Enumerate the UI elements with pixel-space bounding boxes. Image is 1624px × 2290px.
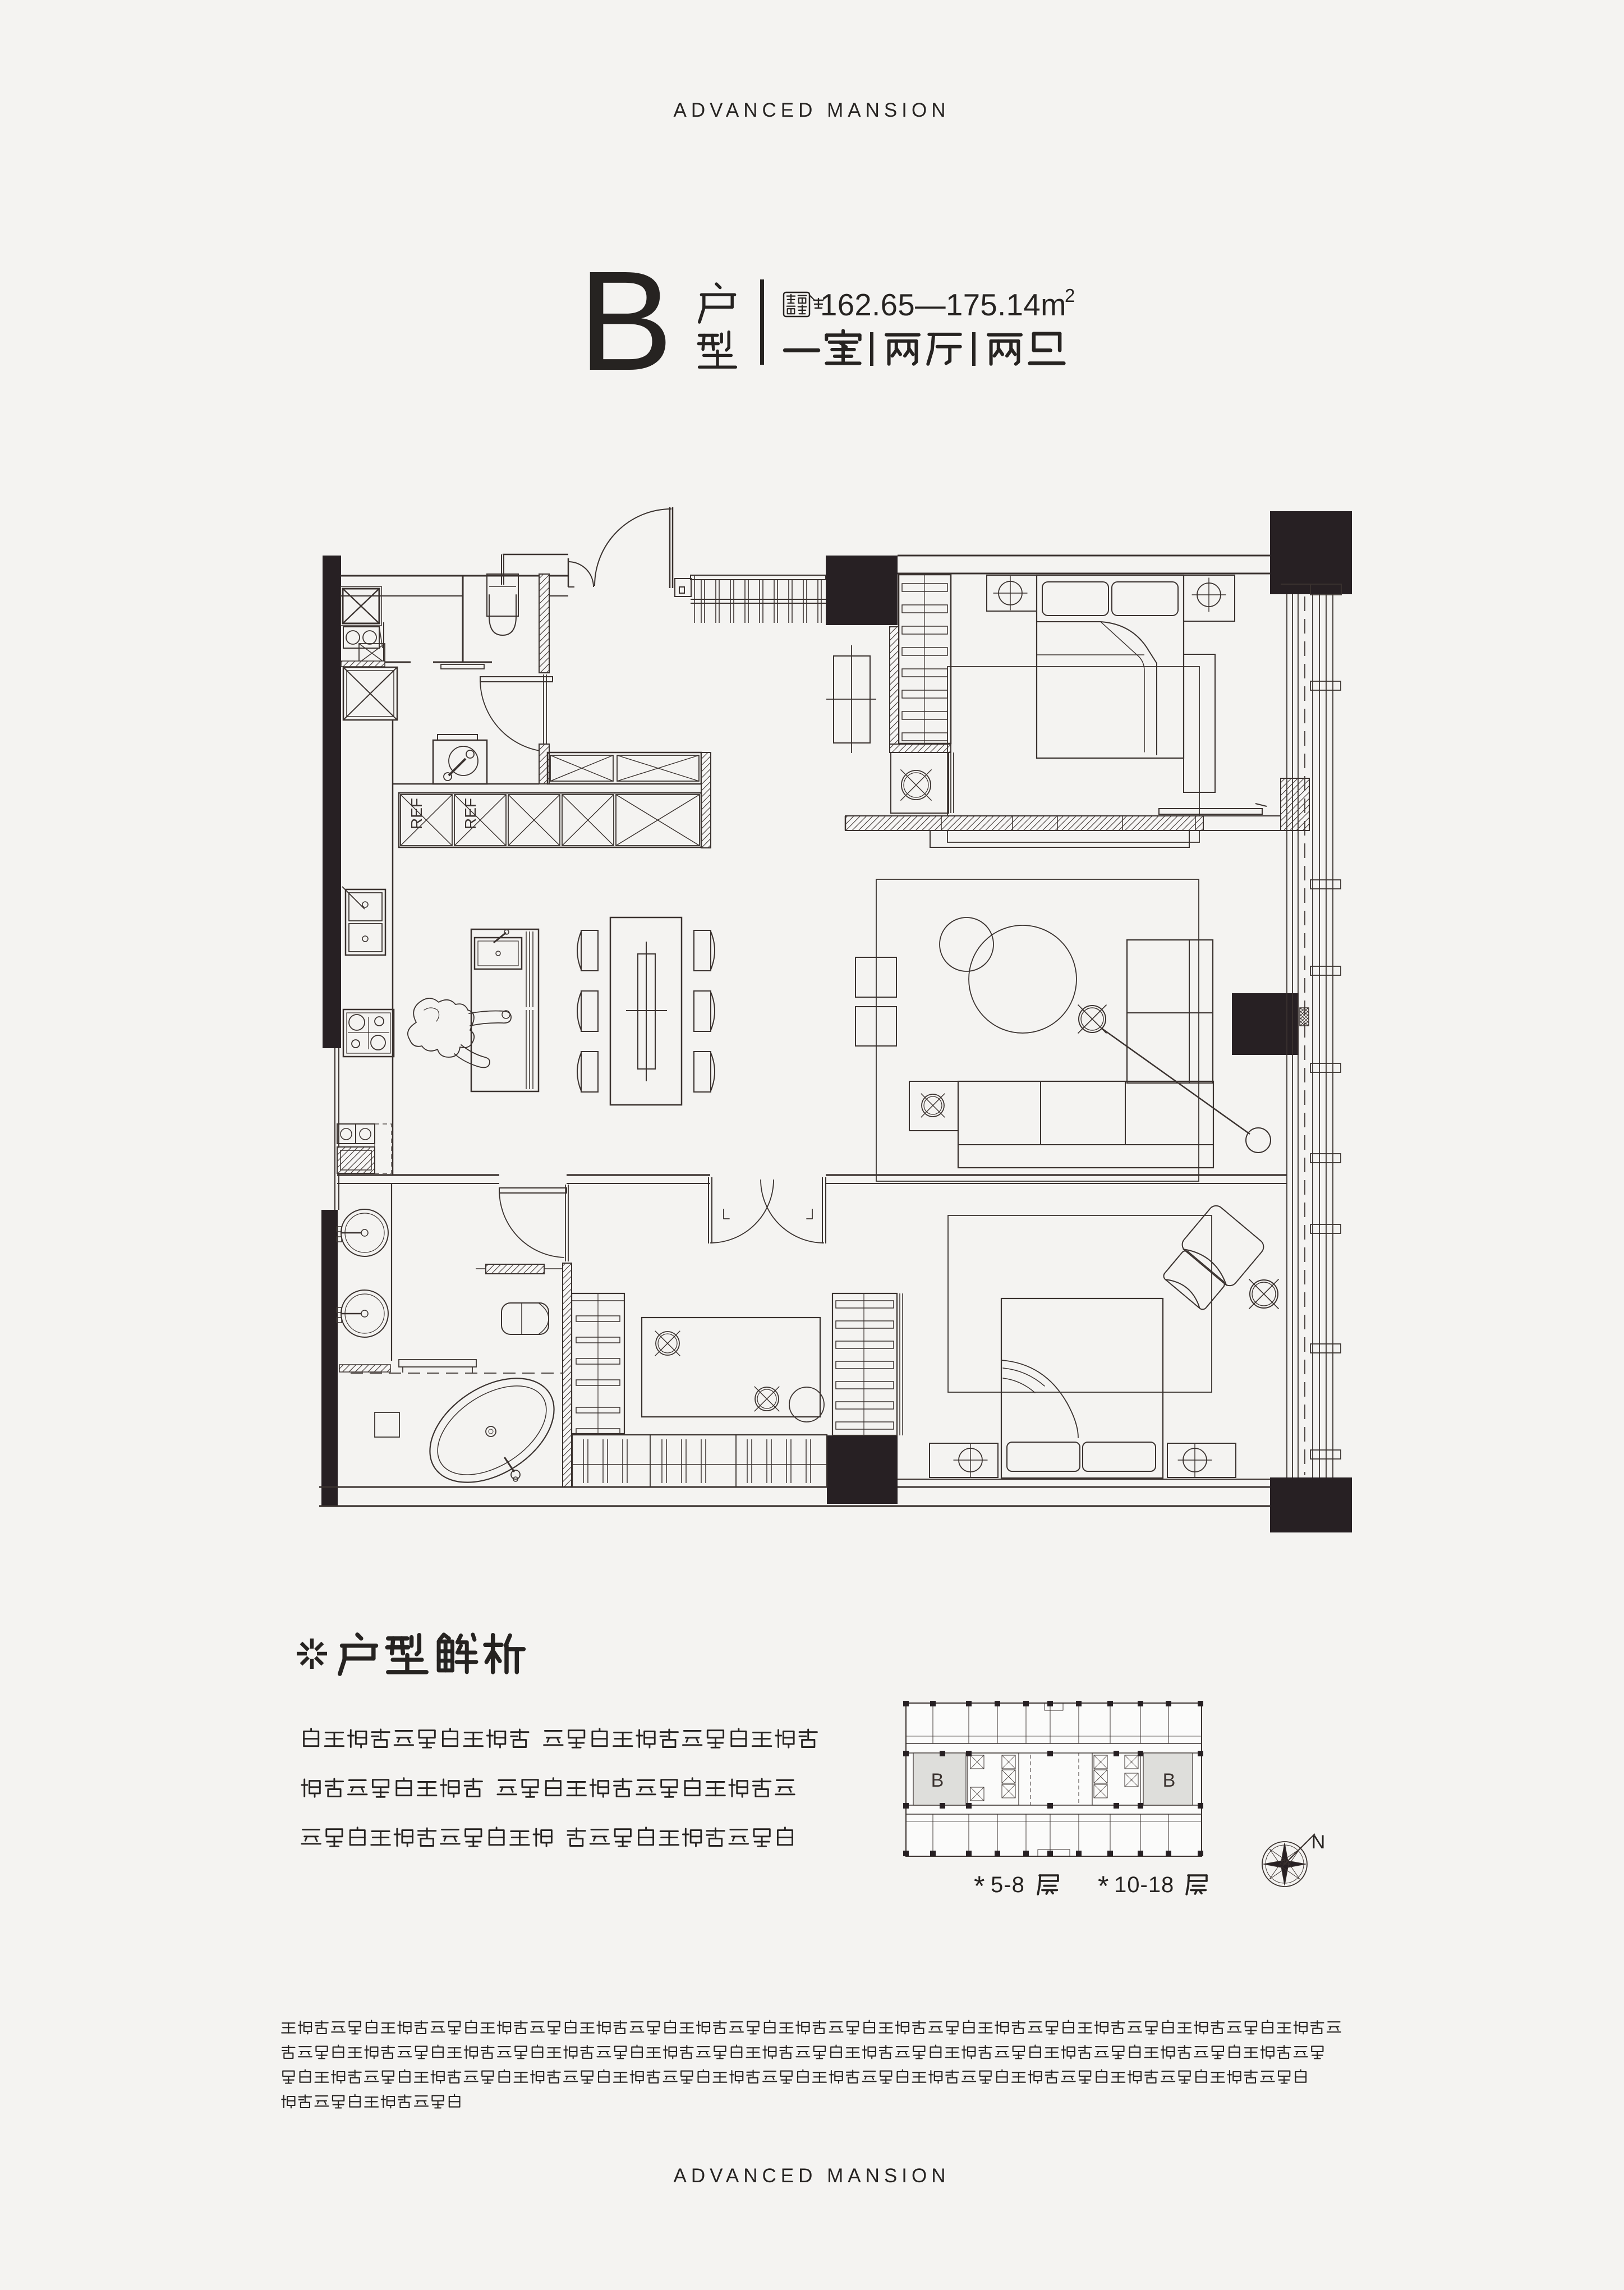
svg-text:REF: REF — [462, 798, 479, 829]
svg-text:B: B — [931, 1770, 944, 1791]
svg-text:2: 2 — [1065, 285, 1075, 306]
svg-text:B: B — [578, 241, 673, 400]
svg-text:B: B — [1163, 1770, 1176, 1791]
svg-text:N: N — [1312, 1832, 1326, 1853]
svg-text:ADVANCED MANSION: ADVANCED MANSION — [674, 99, 950, 121]
svg-text:162.65—175.14m: 162.65—175.14m — [820, 288, 1066, 322]
svg-text:10-18: 10-18 — [1114, 1873, 1174, 1897]
svg-text:5-8: 5-8 — [991, 1873, 1025, 1897]
svg-text:ADVANCED MANSION: ADVANCED MANSION — [674, 2165, 950, 2187]
svg-text:*: * — [1098, 1870, 1108, 1902]
svg-text:*: * — [974, 1870, 984, 1902]
svg-text:REF: REF — [408, 798, 425, 829]
